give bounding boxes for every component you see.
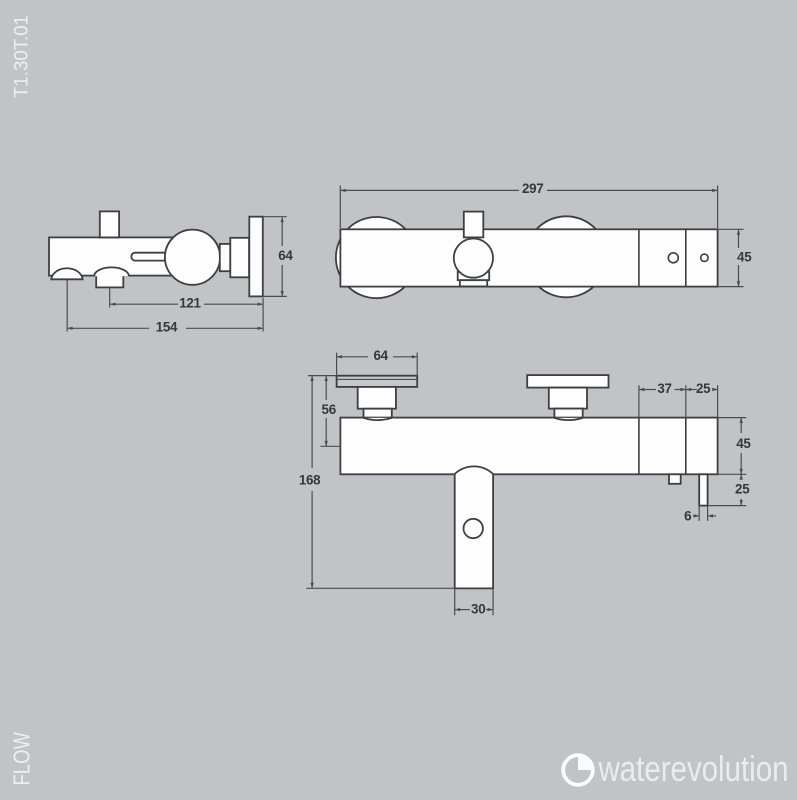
svg-text:56: 56 [322,402,336,417]
svg-text:168: 168 [299,472,321,487]
svg-text:25: 25 [735,482,750,497]
svg-text:45: 45 [737,250,752,265]
svg-text:64: 64 [373,348,388,363]
svg-text:297: 297 [522,181,543,196]
svg-text:waterevolution: waterevolution [598,748,789,789]
svg-text:154: 154 [156,320,178,335]
svg-text:T1.30T.01: T1.30T.01 [11,15,33,98]
svg-text:121: 121 [179,296,201,311]
svg-text:45: 45 [736,436,751,451]
svg-text:30: 30 [471,601,485,616]
svg-text:64: 64 [278,248,293,263]
svg-text:25: 25 [696,381,711,396]
svg-text:6: 6 [684,508,691,523]
svg-text:37: 37 [657,381,671,396]
svg-text:FLOW: FLOW [9,732,35,786]
